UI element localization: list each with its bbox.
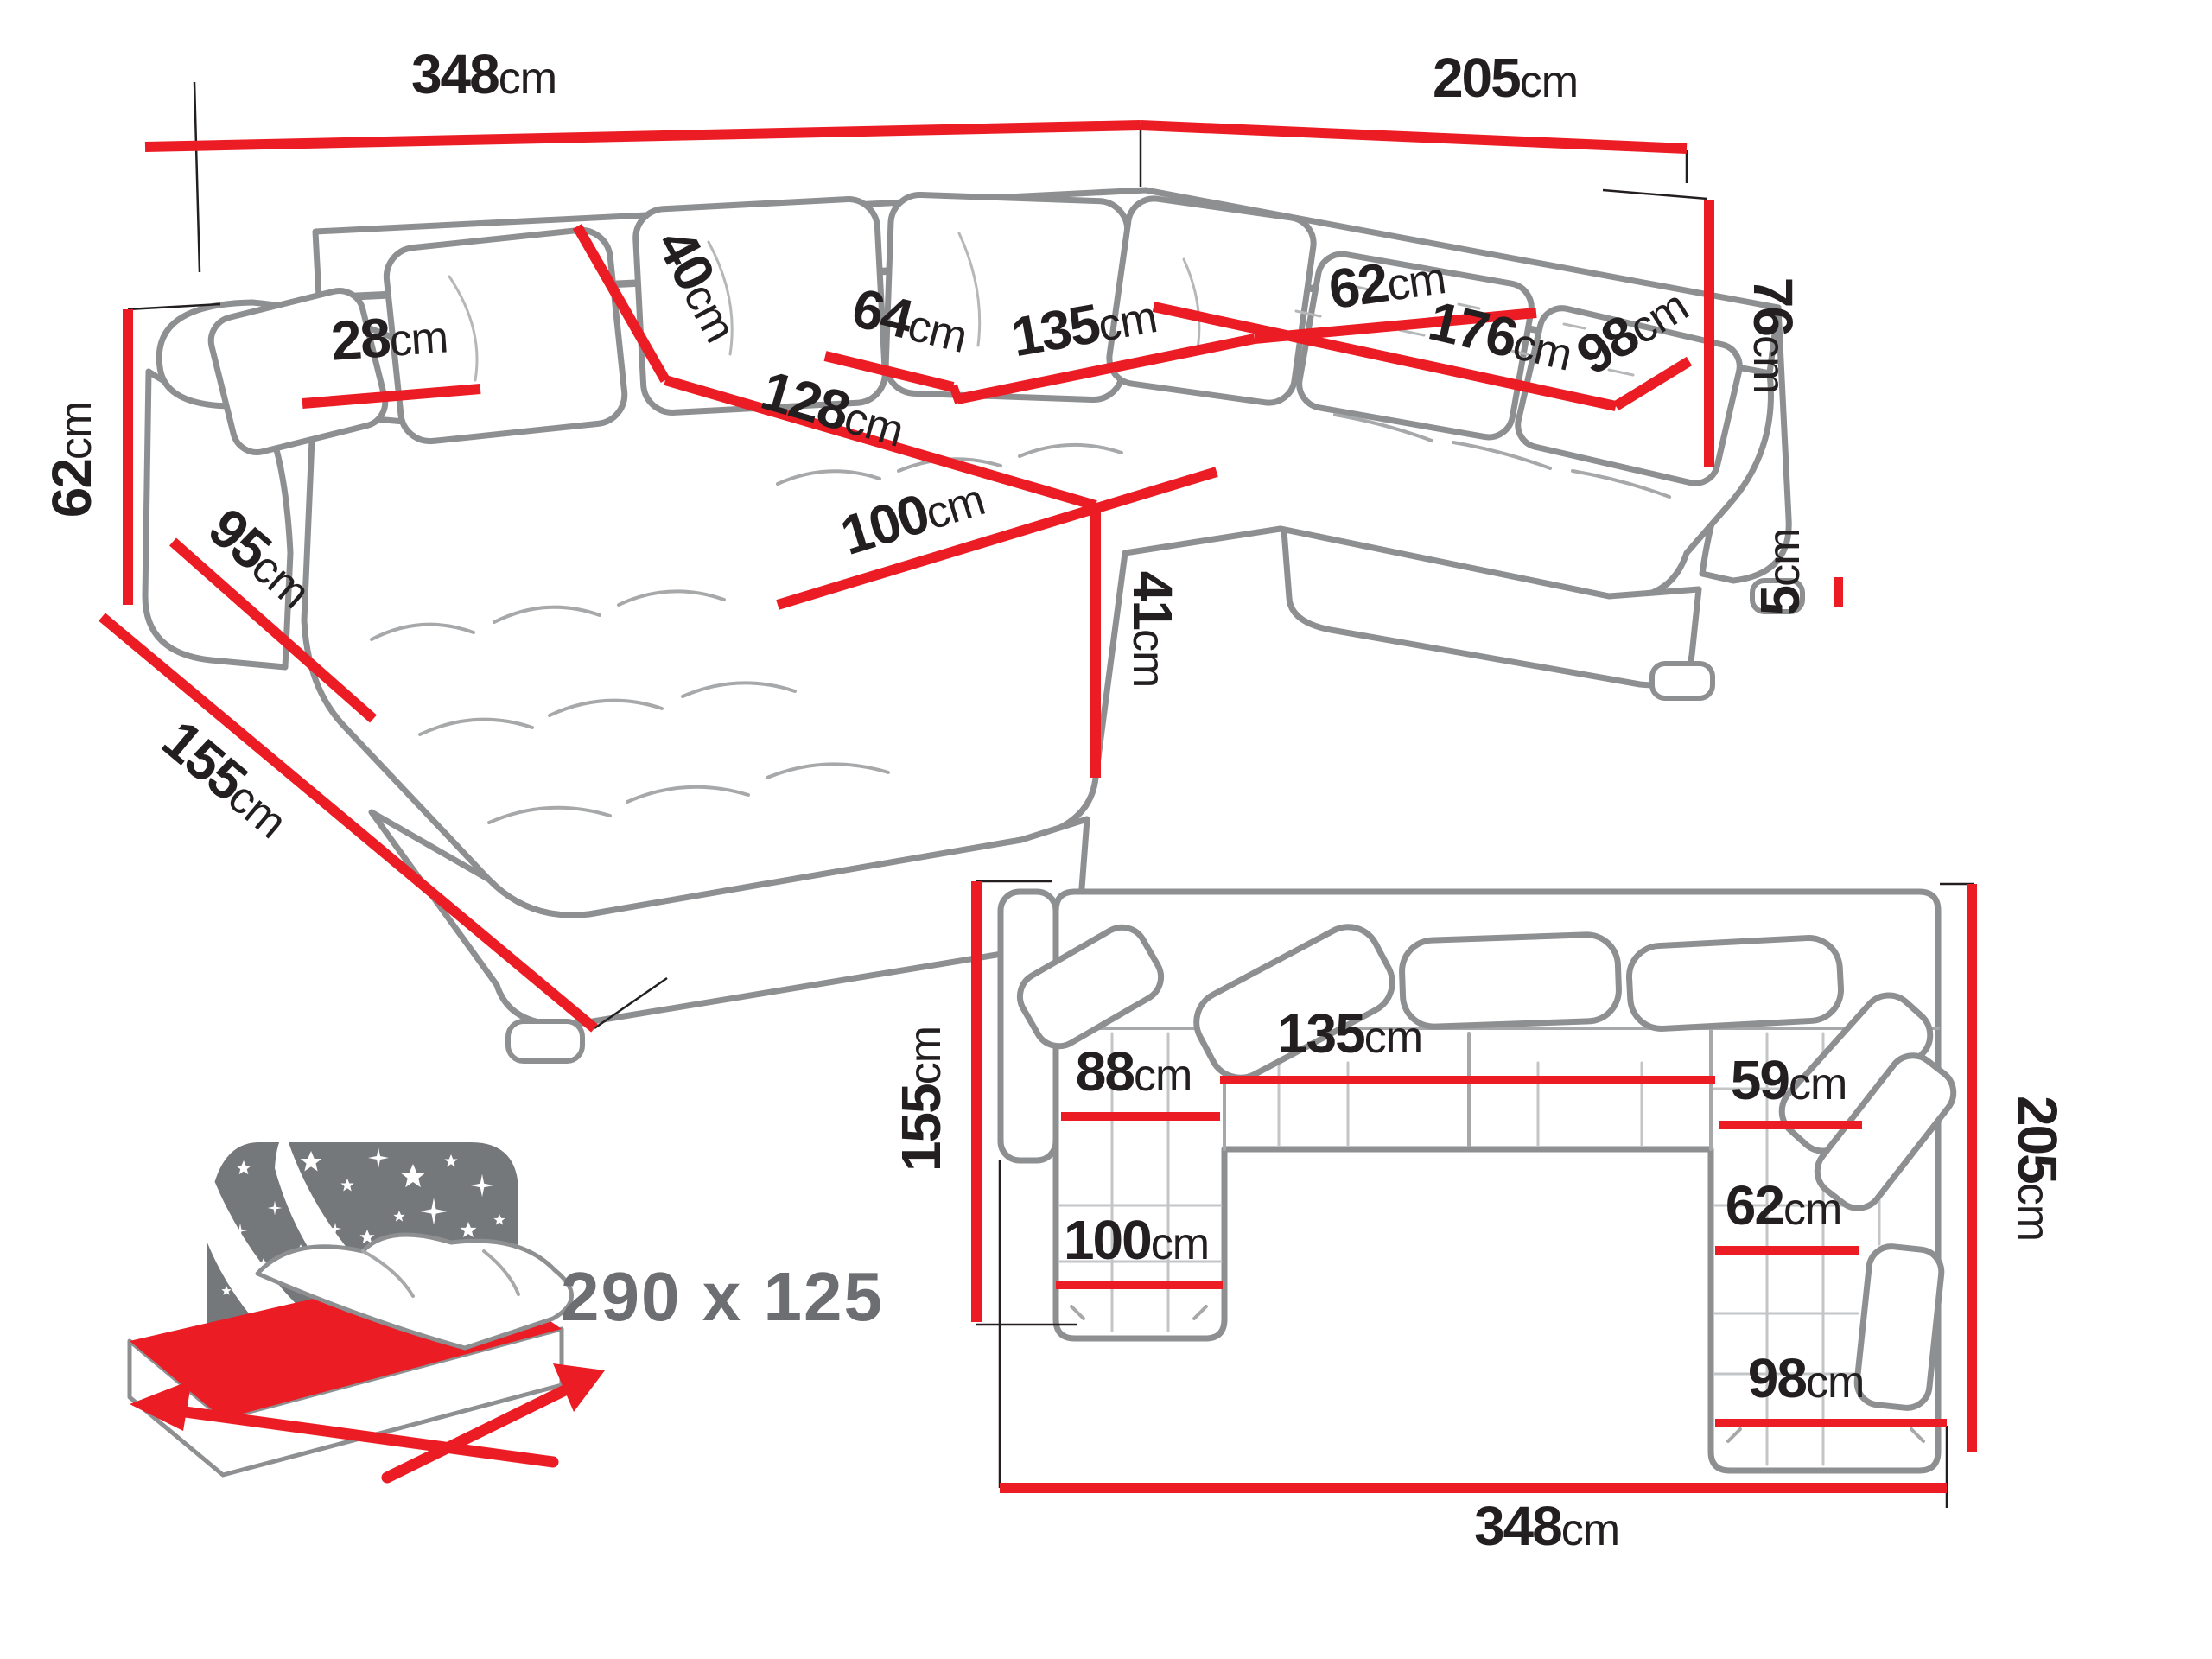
dimension-line-205 (1141, 125, 1687, 149)
dim-155-plan-label: 155cm (890, 1027, 952, 1172)
pillow (1401, 934, 1619, 1028)
sofa-bed-icon: 290 x 125 (130, 1132, 884, 1478)
dim-348-plan: 348cm (1000, 1488, 1947, 1557)
sofa-plan-view: 155cm 205cm 348cm 88cm 135cm 59cm 62cm (890, 881, 2069, 1557)
dim-41-label: 41cm (1122, 571, 1184, 688)
dimension-diagram-page: 348cm 205cm 62cm 155cm 95cm 28cm 40cm 1 (0, 0, 2212, 1659)
dim-205-plan: 205cm (1972, 884, 2069, 1452)
dim-205-label: 205cm (1433, 47, 1578, 109)
sleeping-dimensions-label: 290 x 125 (561, 1258, 884, 1335)
dim-205-plan-label: 205cm (2006, 1096, 2069, 1241)
dim-5-perspective: 5cm (1749, 529, 1839, 616)
dim-155-label: 155cm (151, 709, 302, 849)
sofa-foot (1652, 664, 1713, 698)
dim-205-perspective: 205cm (1141, 47, 1687, 149)
pillow (1628, 937, 1843, 1031)
plan-right-back-pad (1855, 1244, 1944, 1410)
sofa-foot (508, 1021, 582, 1061)
dim-348-label: 348cm (411, 43, 556, 105)
dim-348-perspective: 348cm (145, 43, 1141, 147)
dim-62-left-label: 62cm (41, 402, 103, 518)
dim-62-left: 62cm (41, 309, 128, 605)
dimension-line-348 (145, 125, 1141, 147)
dim-348-plan-label: 348cm (1474, 1495, 1619, 1557)
dim-76-label: 76cm (1742, 277, 1804, 394)
diagram-canvas: 348cm 205cm 62cm 155cm 95cm 28cm 40cm 1 (0, 0, 2212, 1659)
